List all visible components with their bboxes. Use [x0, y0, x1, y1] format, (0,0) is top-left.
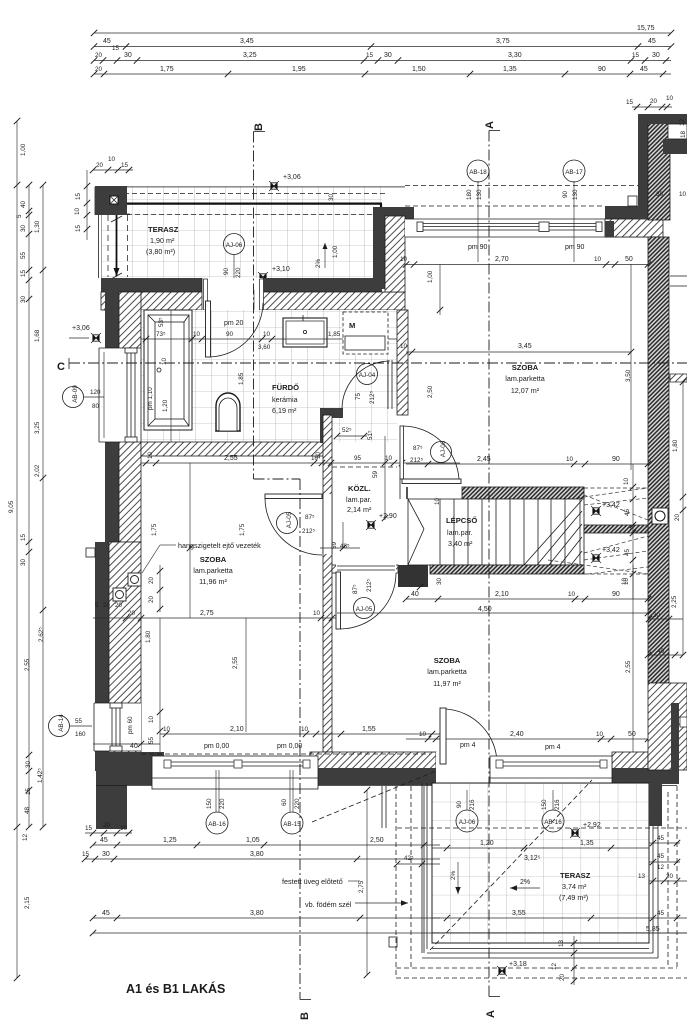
- svg-text:10: 10: [679, 191, 687, 198]
- svg-text:20: 20: [128, 610, 136, 617]
- svg-text:212⁵: 212⁵: [302, 528, 316, 535]
- svg-text:3,12⁵: 3,12⁵: [524, 855, 541, 862]
- svg-text:2,40: 2,40: [510, 731, 524, 738]
- svg-text:30: 30: [384, 52, 392, 59]
- svg-text:75: 75: [355, 392, 362, 400]
- svg-text:TERASZ: TERASZ: [148, 225, 179, 234]
- svg-text:AB-09: AB-09: [72, 385, 79, 403]
- svg-text:2,62⁵: 2,62⁵: [38, 627, 45, 642]
- svg-text:3,40 m²: 3,40 m²: [448, 539, 473, 548]
- svg-text:AB-14: AB-14: [58, 714, 65, 732]
- svg-text:1,00: 1,00: [20, 143, 27, 156]
- svg-text:2%: 2%: [450, 870, 457, 880]
- svg-text:AB-16: AB-16: [208, 821, 226, 828]
- svg-text:AJ-06: AJ-06: [459, 819, 476, 826]
- svg-text:AJ-04: AJ-04: [359, 372, 376, 379]
- svg-text:SZOBA: SZOBA: [434, 656, 461, 665]
- svg-text:10: 10: [148, 715, 155, 723]
- svg-text:130: 130: [476, 189, 483, 200]
- svg-text:1,95: 1,95: [292, 66, 306, 73]
- svg-text:10: 10: [120, 825, 128, 832]
- svg-text:15: 15: [25, 787, 32, 795]
- svg-text:TERASZ: TERASZ: [560, 871, 591, 880]
- svg-text:15: 15: [20, 533, 27, 541]
- svg-text:1,85: 1,85: [238, 372, 245, 385]
- svg-text:42⁵: 42⁵: [404, 855, 414, 862]
- svg-text:87⁵: 87⁵: [305, 514, 315, 521]
- svg-text:20: 20: [559, 973, 566, 981]
- svg-text:15,75: 15,75: [637, 25, 655, 32]
- svg-text:AJ-06: AJ-06: [440, 440, 447, 457]
- svg-text:20: 20: [103, 602, 111, 609]
- svg-text:3,45: 3,45: [240, 38, 254, 45]
- svg-text:kerámia: kerámia: [272, 395, 298, 404]
- svg-text:45: 45: [102, 910, 110, 917]
- svg-text:1,20: 1,20: [162, 399, 169, 412]
- svg-text:15: 15: [20, 269, 27, 277]
- svg-text:2,50: 2,50: [427, 385, 434, 398]
- svg-text:15: 15: [112, 45, 120, 52]
- svg-text:20: 20: [148, 595, 155, 603]
- svg-text:pm 20: pm 20: [224, 320, 244, 327]
- svg-text:2,70: 2,70: [495, 256, 509, 263]
- svg-text:+3,06: +3,06: [283, 174, 301, 181]
- svg-text:+3,42: +3,42: [602, 502, 620, 509]
- svg-text:90: 90: [456, 800, 463, 808]
- svg-text:10: 10: [621, 577, 628, 585]
- svg-text:A1 és B1 LAKÁS: A1 és B1 LAKÁS: [126, 981, 225, 996]
- svg-text:20: 20: [148, 576, 155, 584]
- svg-text:3,25: 3,25: [34, 421, 41, 434]
- svg-text:hangszigetelt ejtő vezeték: hangszigetelt ejtő vezeték: [178, 541, 261, 550]
- svg-text:90: 90: [612, 591, 620, 598]
- svg-text:15: 15: [632, 52, 640, 59]
- svg-text:10: 10: [161, 357, 168, 365]
- svg-text:20: 20: [650, 98, 658, 105]
- svg-text:pm 4: pm 4: [545, 744, 561, 751]
- svg-text:3,30: 3,30: [508, 52, 522, 59]
- svg-text:1,75: 1,75: [160, 66, 174, 73]
- svg-text:180: 180: [466, 189, 473, 200]
- svg-text:45: 45: [624, 508, 631, 516]
- svg-text:M: M: [349, 321, 355, 330]
- svg-text:12: 12: [551, 962, 558, 970]
- svg-text:lam.par.: lam.par.: [346, 495, 372, 504]
- svg-text:1,85: 1,85: [328, 331, 341, 338]
- svg-text:45: 45: [657, 853, 665, 860]
- svg-text:87⁵: 87⁵: [413, 445, 423, 452]
- svg-text:30: 30: [102, 851, 110, 858]
- svg-text:5: 5: [16, 214, 23, 218]
- svg-text:A: A: [485, 1010, 497, 1018]
- svg-text:150: 150: [206, 798, 213, 809]
- svg-text:10: 10: [566, 456, 574, 463]
- svg-text:10: 10: [400, 343, 408, 350]
- svg-text:FÜRDŐ: FÜRDŐ: [272, 383, 299, 392]
- svg-text:220: 220: [219, 798, 226, 809]
- svg-text:1,50: 1,50: [412, 66, 426, 73]
- svg-text:3,60: 3,60: [258, 344, 271, 351]
- svg-text:45: 45: [103, 38, 111, 45]
- svg-text:1,68: 1,68: [34, 329, 41, 342]
- svg-text:festett üveg előtető: festett üveg előtető: [282, 877, 343, 886]
- svg-text:40: 40: [20, 200, 27, 208]
- svg-text:3,55: 3,55: [512, 910, 526, 917]
- svg-text:4,50: 4,50: [478, 606, 492, 613]
- svg-text:30: 30: [20, 558, 27, 566]
- svg-text:C: C: [57, 361, 65, 373]
- svg-text:1,35: 1,35: [580, 840, 594, 847]
- svg-text:9,05: 9,05: [8, 500, 15, 513]
- svg-text:AJ-05: AJ-05: [356, 606, 373, 613]
- svg-text:1,05: 1,05: [246, 837, 260, 844]
- svg-text:150: 150: [541, 799, 548, 810]
- svg-text:3,80: 3,80: [250, 851, 264, 858]
- svg-text:lam.parketta: lam.parketta: [427, 667, 467, 676]
- svg-text:pm 90: pm 90: [565, 244, 585, 251]
- svg-text:13: 13: [638, 873, 646, 880]
- svg-text:80: 80: [92, 403, 100, 410]
- svg-text:2,15: 2,15: [24, 896, 31, 909]
- svg-text:2,02: 2,02: [34, 464, 41, 477]
- svg-text:30: 30: [652, 52, 660, 59]
- svg-text:20: 20: [674, 513, 681, 521]
- svg-text:pm 0,00: pm 0,00: [277, 743, 302, 750]
- svg-text:10: 10: [666, 95, 674, 102]
- svg-text:2,55: 2,55: [24, 658, 31, 671]
- svg-text:(3,80 m²): (3,80 m²): [146, 247, 175, 256]
- svg-text:50: 50: [628, 731, 636, 738]
- svg-text:40: 40: [657, 648, 665, 655]
- svg-text:15: 15: [75, 224, 82, 232]
- svg-text:10: 10: [623, 477, 630, 485]
- svg-text:10: 10: [108, 156, 116, 163]
- svg-text:45: 45: [648, 38, 656, 45]
- svg-text:30: 30: [436, 577, 443, 585]
- svg-text:50: 50: [625, 256, 633, 263]
- svg-text:10: 10: [193, 331, 201, 338]
- svg-text:13: 13: [558, 939, 565, 947]
- svg-text:55: 55: [20, 251, 27, 259]
- svg-text:40: 40: [411, 591, 419, 598]
- svg-text:1,42⁵: 1,42⁵: [37, 768, 44, 783]
- svg-text:30: 30: [20, 224, 27, 232]
- svg-text:2,10: 2,10: [495, 591, 509, 598]
- svg-text:216: 216: [469, 799, 476, 810]
- svg-text:vb. födém szél: vb. födém szél: [305, 900, 352, 909]
- svg-text:10: 10: [400, 256, 408, 263]
- svg-text:1,80: 1,80: [145, 630, 152, 643]
- svg-text:1,35: 1,35: [503, 66, 517, 73]
- svg-text:48: 48: [24, 806, 31, 814]
- svg-text:1,00: 1,00: [332, 245, 339, 258]
- svg-text:20: 20: [666, 873, 674, 880]
- svg-text:120: 120: [90, 389, 101, 396]
- svg-text:59: 59: [372, 470, 379, 478]
- svg-text:45: 45: [100, 837, 108, 844]
- svg-text:+3,10: +3,10: [272, 266, 290, 273]
- svg-text:2,50: 2,50: [370, 837, 384, 844]
- svg-text:AB-16: AB-16: [544, 819, 562, 826]
- svg-text:216: 216: [554, 799, 561, 810]
- svg-text:10: 10: [434, 497, 441, 505]
- svg-text:15: 15: [366, 52, 374, 59]
- svg-text:pm 0,00: pm 0,00: [204, 743, 229, 750]
- svg-text:AB-15: AB-15: [283, 821, 301, 828]
- svg-text:10: 10: [419, 731, 427, 738]
- svg-text:2,25: 2,25: [671, 595, 678, 608]
- svg-text:20: 20: [95, 66, 103, 73]
- svg-text:B: B: [299, 1012, 311, 1020]
- svg-text:lam.parketta: lam.parketta: [505, 374, 545, 383]
- svg-text:30: 30: [656, 191, 664, 198]
- svg-text:lam.parketta: lam.parketta: [193, 566, 233, 575]
- svg-text:10: 10: [594, 256, 602, 263]
- svg-text:45: 45: [657, 835, 665, 842]
- svg-text:12,07 m²: 12,07 m²: [511, 386, 540, 395]
- svg-text:11,97 m²: 11,97 m²: [433, 679, 461, 688]
- svg-text:6,19 m²: 6,19 m²: [272, 406, 297, 415]
- svg-text:11,96 m²: 11,96 m²: [199, 577, 227, 586]
- svg-text:220: 220: [235, 267, 242, 278]
- svg-text:55: 55: [148, 736, 155, 744]
- svg-text:2,14 m²: 2,14 m²: [347, 505, 372, 514]
- svg-text:lam.par.: lam.par.: [447, 528, 473, 537]
- svg-text:12: 12: [679, 118, 686, 126]
- svg-text:B: B: [253, 123, 265, 131]
- svg-text:30: 30: [653, 612, 661, 619]
- svg-text:+2,92: +2,92: [583, 822, 601, 829]
- svg-text:3,75: 3,75: [496, 38, 510, 45]
- svg-text:10: 10: [568, 591, 576, 598]
- svg-text:1,20: 1,20: [480, 840, 494, 847]
- svg-text:55: 55: [75, 718, 83, 725]
- svg-text:15: 15: [626, 99, 634, 106]
- svg-text:5: 5: [95, 602, 99, 609]
- svg-text:212⁵: 212⁵: [369, 390, 376, 404]
- svg-text:15: 15: [121, 162, 129, 169]
- svg-text:2,10: 2,10: [230, 726, 244, 733]
- svg-text:90: 90: [562, 190, 569, 198]
- svg-text:1,30: 1,30: [34, 220, 41, 233]
- svg-text:90: 90: [226, 331, 234, 338]
- svg-text:20: 20: [115, 602, 123, 609]
- svg-text:2,75: 2,75: [200, 610, 214, 617]
- svg-text:90: 90: [223, 267, 230, 275]
- svg-text:3,80: 3,80: [250, 910, 264, 917]
- svg-text:1,90 m²: 1,90 m²: [150, 236, 175, 245]
- svg-text:45: 45: [624, 548, 631, 556]
- svg-text:45: 45: [640, 66, 648, 73]
- svg-text:1,75: 1,75: [239, 523, 246, 536]
- svg-text:+3,06: +3,06: [72, 325, 90, 332]
- svg-text:10: 10: [385, 455, 393, 462]
- svg-text:10: 10: [311, 455, 319, 462]
- svg-text:90: 90: [598, 66, 606, 73]
- svg-text:10: 10: [74, 207, 81, 215]
- svg-text:2,55: 2,55: [232, 656, 239, 669]
- svg-text:AB-17: AB-17: [565, 169, 583, 176]
- svg-text:+3,42: +3,42: [602, 547, 620, 554]
- svg-text:1,55: 1,55: [362, 726, 376, 733]
- svg-text:20: 20: [95, 52, 103, 59]
- svg-text:53⁵: 53⁵: [158, 317, 165, 327]
- svg-text:45: 45: [657, 910, 665, 917]
- svg-text:SZOBA: SZOBA: [512, 363, 539, 372]
- svg-text:60: 60: [281, 798, 288, 806]
- svg-text:52⁵: 52⁵: [342, 427, 352, 434]
- svg-text:+3,18: +3,18: [509, 961, 527, 968]
- svg-text:2%: 2%: [315, 258, 322, 268]
- svg-text:pm 60: pm 60: [127, 716, 134, 734]
- svg-text:10: 10: [301, 726, 309, 733]
- svg-text:12: 12: [657, 864, 665, 871]
- svg-text:1,80: 1,80: [672, 439, 679, 452]
- svg-text:(7,49 m²): (7,49 m²): [559, 893, 588, 902]
- svg-text:3,45: 3,45: [518, 343, 532, 350]
- svg-text:+2,90: +2,90: [379, 513, 397, 520]
- svg-text:30: 30: [25, 760, 32, 768]
- svg-text:212⁵: 212⁵: [410, 457, 424, 464]
- svg-text:87⁵: 87⁵: [352, 584, 359, 594]
- svg-text:130: 130: [572, 189, 579, 200]
- svg-text:95: 95: [354, 455, 362, 462]
- svg-text:2,75: 2,75: [358, 880, 365, 893]
- svg-text:3,74 m²: 3,74 m²: [562, 882, 587, 891]
- svg-text:1,75: 1,75: [151, 523, 158, 536]
- svg-text:20: 20: [103, 822, 111, 829]
- svg-text:15: 15: [85, 825, 93, 832]
- svg-text:90: 90: [612, 456, 620, 463]
- svg-text:10: 10: [163, 726, 171, 733]
- svg-text:3,25: 3,25: [243, 52, 257, 59]
- svg-text:SZOBA: SZOBA: [200, 555, 227, 564]
- svg-text:KÖZL.: KÖZL.: [348, 484, 371, 493]
- svg-text:51⁵: 51⁵: [367, 430, 374, 440]
- svg-text:212⁵: 212⁵: [366, 578, 373, 592]
- svg-text:20: 20: [96, 162, 104, 169]
- svg-text:30: 30: [124, 52, 132, 59]
- svg-text:AJ-05: AJ-05: [286, 511, 293, 528]
- svg-text:15: 15: [82, 851, 90, 858]
- svg-text:10: 10: [263, 331, 271, 338]
- svg-text:2%: 2%: [520, 879, 530, 886]
- svg-text:10: 10: [147, 451, 154, 459]
- svg-text:160: 160: [75, 731, 86, 738]
- svg-text:A: A: [484, 121, 496, 129]
- svg-text:73⁵: 73⁵: [156, 331, 166, 338]
- svg-text:1,25: 1,25: [163, 837, 177, 844]
- svg-text:AB-18: AB-18: [469, 169, 487, 176]
- svg-text:pm 1,10: pm 1,10: [147, 387, 154, 410]
- svg-text:15: 15: [75, 192, 82, 200]
- svg-text:2,55: 2,55: [224, 455, 238, 462]
- svg-text:30: 30: [20, 295, 27, 303]
- svg-text:10: 10: [313, 610, 321, 617]
- svg-text:10: 10: [596, 731, 604, 738]
- svg-text:30: 30: [328, 193, 335, 201]
- svg-text:LÉPCSŐ: LÉPCSŐ: [446, 516, 477, 525]
- svg-text:5,85: 5,85: [646, 926, 660, 933]
- svg-text:pm 4: pm 4: [460, 742, 476, 749]
- svg-text:2,55: 2,55: [625, 660, 632, 673]
- svg-text:1,00: 1,00: [427, 270, 434, 283]
- svg-text:18: 18: [680, 130, 687, 138]
- svg-text:AJ-06: AJ-06: [226, 242, 243, 249]
- svg-text:12: 12: [22, 833, 29, 841]
